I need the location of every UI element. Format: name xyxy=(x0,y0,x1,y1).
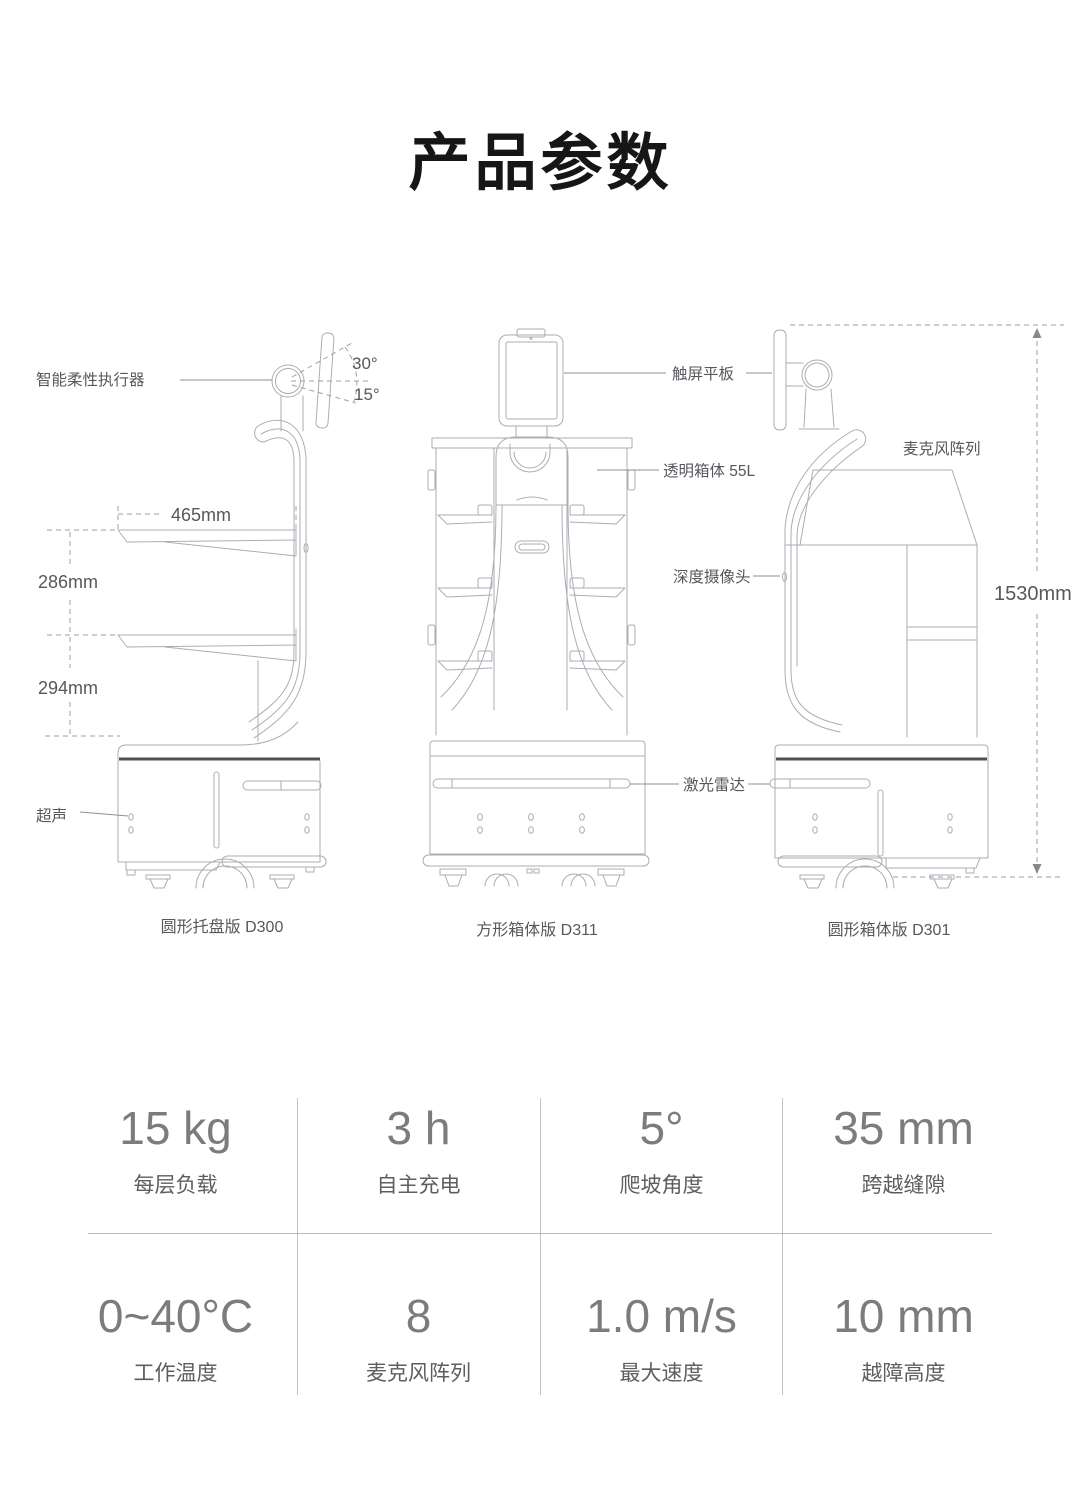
page-title: 产品参数 xyxy=(0,112,1081,202)
dim-tilt-up: 30° xyxy=(352,354,378,373)
spec-label: 每层负载 xyxy=(54,1169,297,1199)
spec-value: 5° xyxy=(540,1102,783,1155)
robot-d311-drawing xyxy=(423,329,649,886)
spec-label: 越障高度 xyxy=(782,1357,1025,1387)
spec-value: 8 xyxy=(297,1290,540,1343)
product-spec-page: 产品参数 xyxy=(0,0,1081,1511)
spec-cell-charging: 3 h 自主充电 xyxy=(297,1102,540,1199)
spec-cell-obstacle-height: 10 mm 越障高度 xyxy=(782,1290,1025,1387)
spec-value: 0~40°C xyxy=(54,1290,297,1343)
robot-diagrams: 智能柔性执行器 30° 15° 465mm 286mm 294mm 超声 触屏平… xyxy=(0,300,1081,950)
spec-label: 跨越缝隙 xyxy=(782,1169,1025,1199)
spec-cell-mic-array: 8 麦克风阵列 xyxy=(297,1290,540,1387)
spec-label: 最大速度 xyxy=(540,1357,783,1387)
dim-total-height: 1530mm xyxy=(994,583,1072,605)
label-lidar: 激光雷达 xyxy=(683,776,745,794)
label-depth-camera: 深度摄像头 xyxy=(673,568,751,586)
robot-d301-drawing xyxy=(770,330,988,888)
dim-shelf-gap-upper: 286mm xyxy=(38,572,98,592)
spec-cell-temperature: 0~40°C 工作温度 xyxy=(54,1290,297,1387)
spec-label: 爬坡角度 xyxy=(540,1169,783,1199)
spec-label: 工作温度 xyxy=(54,1357,297,1387)
robot-d300-drawing xyxy=(118,333,372,888)
label-mic-array: 麦克风阵列 xyxy=(903,440,981,458)
dim-shelf-gap-lower: 294mm xyxy=(38,678,98,698)
spec-value: 10 mm xyxy=(782,1290,1025,1343)
spec-cell-max-speed: 1.0 m/s 最大速度 xyxy=(540,1290,783,1387)
spec-cell-climb-angle: 5° 爬坡角度 xyxy=(540,1102,783,1199)
label-smart-actuator: 智能柔性执行器 xyxy=(36,371,145,389)
caption-robot-d311: 方形箱体版 D311 xyxy=(476,921,598,939)
spec-label: 麦克风阵列 xyxy=(297,1357,540,1387)
spec-label: 自主充电 xyxy=(297,1169,540,1199)
label-ultrasonic: 超声 xyxy=(36,807,67,825)
dim-tilt-down: 15° xyxy=(354,385,380,404)
spec-value: 15 kg xyxy=(54,1102,297,1155)
caption-robot-d300: 圆形托盘版 D300 xyxy=(161,917,284,936)
spec-value: 3 h xyxy=(297,1102,540,1155)
spec-cell-gap-crossing: 35 mm 跨越缝隙 xyxy=(782,1102,1025,1199)
grid-divider-horizontal xyxy=(88,1233,992,1234)
spec-cell-payload: 15 kg 每层负载 xyxy=(54,1102,297,1199)
dim-tray-width: 465mm xyxy=(171,505,231,525)
label-transparent-box: 透明箱体 55L xyxy=(663,462,756,480)
dimension-lines xyxy=(45,325,1064,877)
caption-robot-d301: 圆形箱体版 D301 xyxy=(828,921,951,939)
label-touchscreen: 触屏平板 xyxy=(672,365,734,383)
spec-value: 1.0 m/s xyxy=(540,1290,783,1343)
spec-value: 35 mm xyxy=(782,1102,1025,1155)
